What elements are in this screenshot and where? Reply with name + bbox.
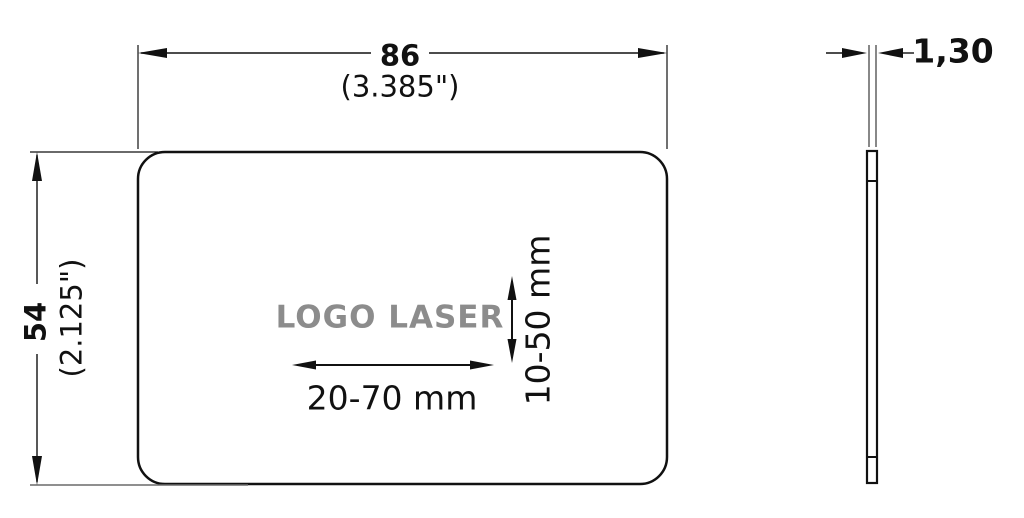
width-dim-value: 86 — [380, 42, 420, 71]
height-dim-value: 54 — [22, 302, 51, 342]
thickness-arrowhead-right-icon — [878, 48, 903, 58]
side-view-outline — [867, 151, 877, 483]
arrowhead-right-icon — [638, 48, 667, 58]
thickness-arrowhead-left-icon — [842, 48, 867, 58]
width-dim-inches: (3.385") — [341, 73, 460, 102]
thickness-dim-value: 1,30 — [912, 35, 993, 68]
card-dimension-drawing: 86 (3.385") 54 (2.125") LOGO LASER 20-70… — [0, 0, 1024, 518]
logo-height-range-label: 10-50 mm — [522, 235, 555, 406]
arrowhead-left-icon — [138, 48, 167, 58]
arrowhead-up-icon — [32, 152, 42, 181]
height-dim-inches: (2.125") — [58, 259, 87, 378]
logo-width-range-label: 20-70 mm — [307, 382, 478, 415]
arrowhead-down-icon — [32, 456, 42, 485]
drawing-lines-layer — [0, 0, 1024, 518]
logo-laser-label: LOGO LASER — [276, 303, 505, 334]
